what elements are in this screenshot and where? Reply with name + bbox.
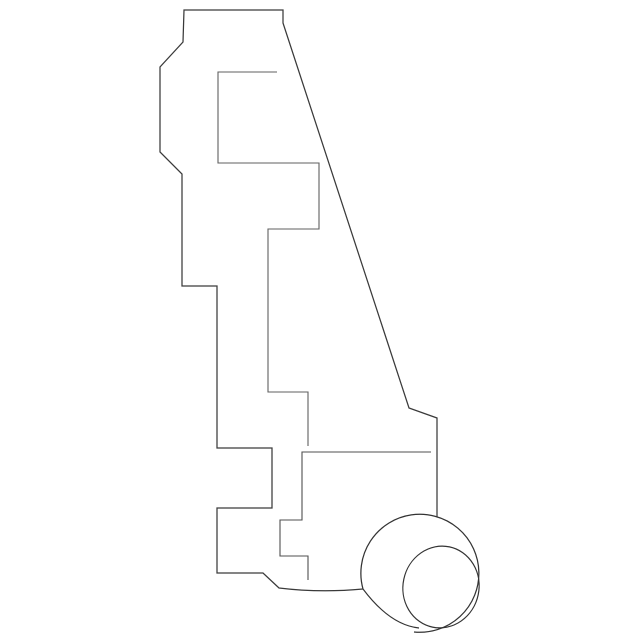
socket-cone-flank [363, 589, 419, 628]
socket-body-arc [361, 514, 479, 632]
socket-front-rim [395, 539, 486, 635]
part-line-drawing [0, 0, 640, 642]
inner-contour-upper [218, 72, 319, 446]
bracket-outline [160, 10, 437, 591]
diagram-canvas [0, 0, 640, 642]
